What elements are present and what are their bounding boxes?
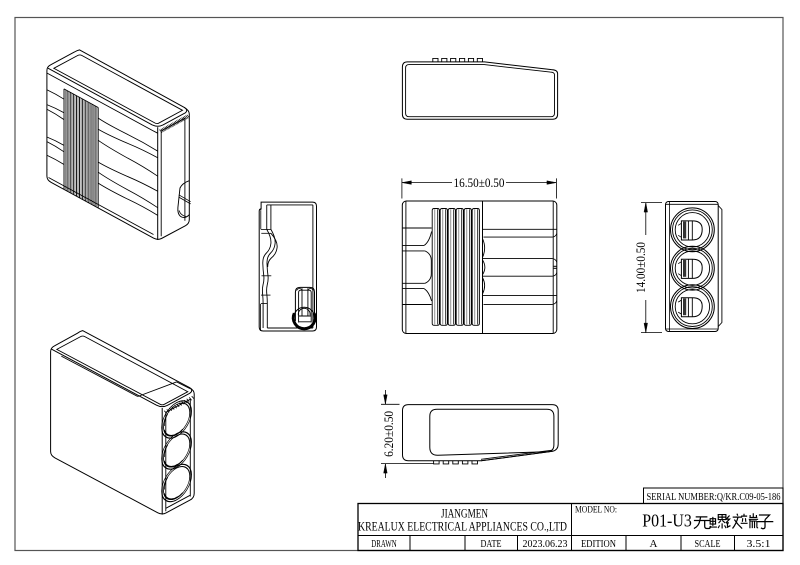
svg-text:SCALE: SCALE: [695, 538, 721, 550]
svg-text:6.20±0.50: 6.20±0.50: [382, 411, 396, 457]
svg-text:KREALUX ELECTRICAL APPLIANCES: KREALUX ELECTRICAL APPLIANCES CO.,LTD: [358, 520, 567, 534]
svg-text:2023.06.23: 2023.06.23: [523, 538, 568, 550]
svg-text:JIANGMEN: JIANGMEN: [441, 507, 488, 521]
svg-text:3.5:1: 3.5:1: [747, 538, 771, 550]
svg-text:16.50±0.50: 16.50±0.50: [454, 176, 505, 190]
svg-text:SERIAL NUMBER:Q/KR.C09-05-186: SERIAL NUMBER:Q/KR.C09-05-186: [647, 492, 781, 503]
svg-text:P01-U3: P01-U3: [642, 511, 692, 531]
svg-text:A: A: [650, 538, 658, 550]
svg-text:MODEL NO:: MODEL NO:: [575, 506, 617, 516]
svg-text:14.00±0.50: 14.00±0.50: [634, 242, 648, 293]
svg-text:EDITION: EDITION: [581, 538, 616, 550]
svg-text:DATE: DATE: [481, 538, 502, 550]
svg-text:DRAWN: DRAWN: [371, 538, 397, 550]
